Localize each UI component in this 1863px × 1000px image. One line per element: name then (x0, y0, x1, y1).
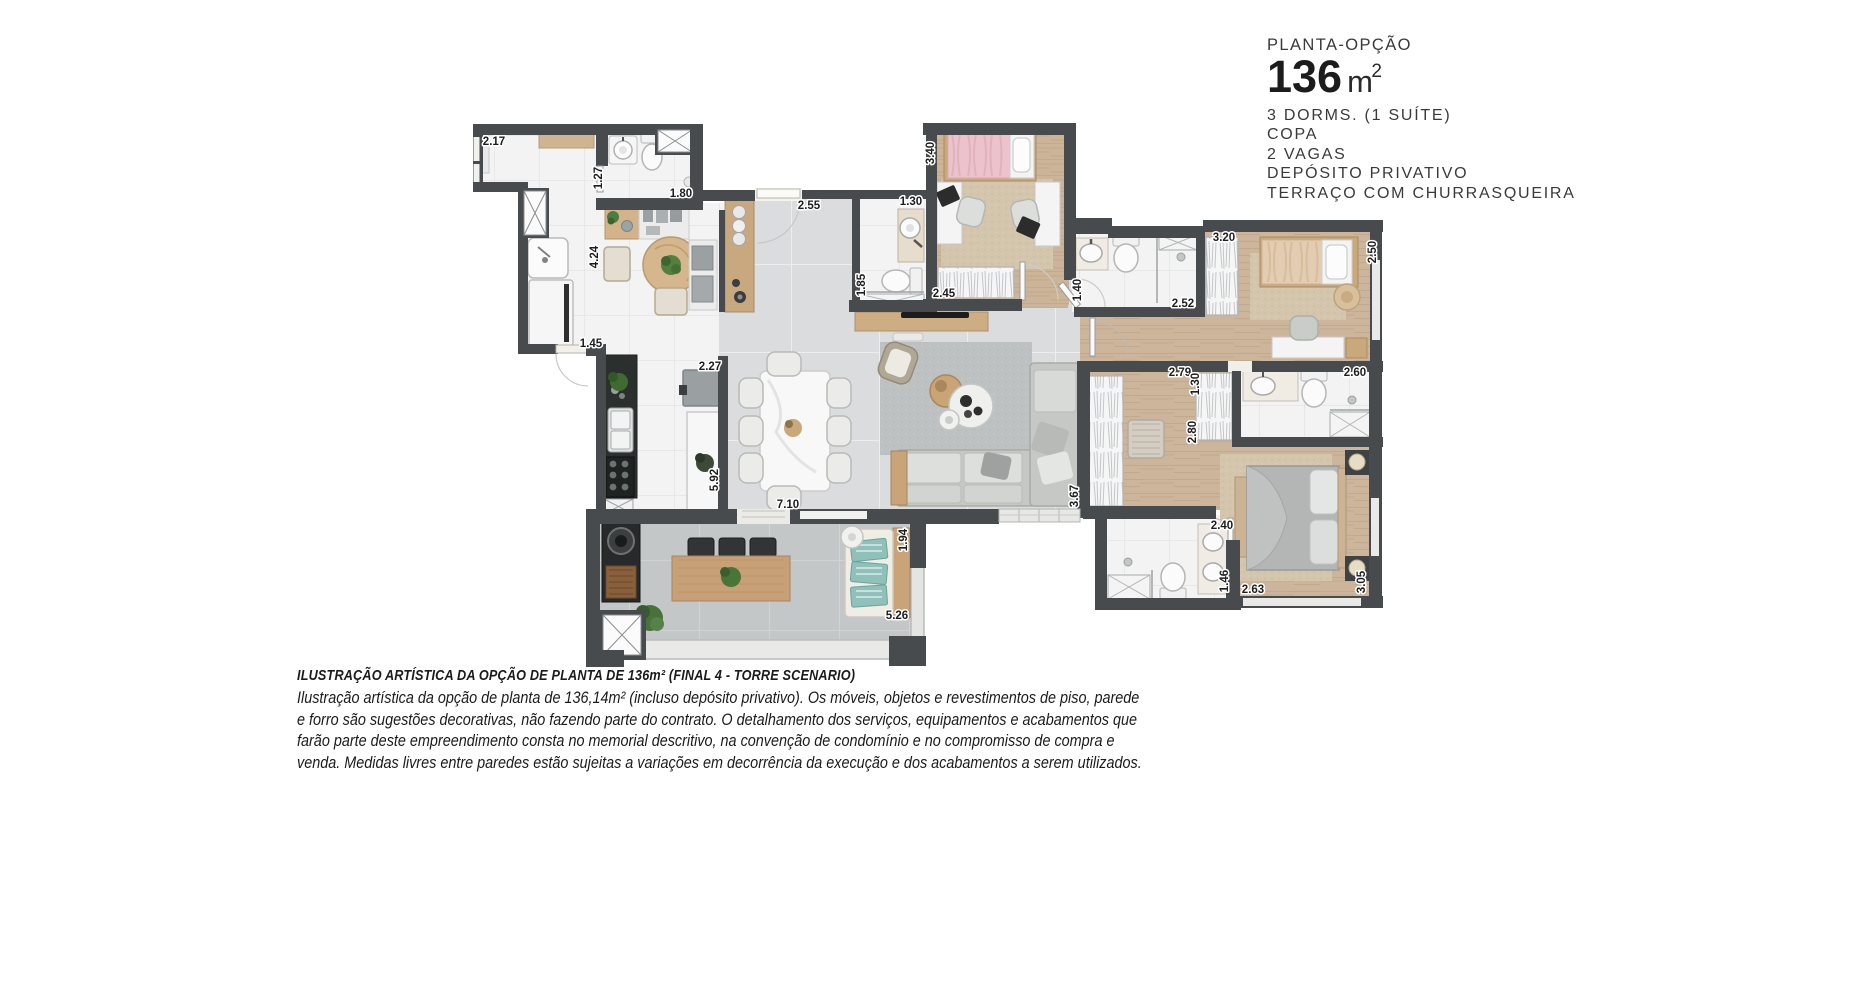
svg-text:1.45: 1.45 (580, 338, 603, 350)
svg-text:1.40: 1.40 (1072, 279, 1084, 301)
svg-text:1.80: 1.80 (670, 188, 692, 200)
svg-text:2.50: 2.50 (1367, 241, 1379, 263)
svg-text:3.05: 3.05 (1356, 570, 1368, 593)
svg-text:3.40: 3.40 (925, 142, 937, 164)
svg-text:3.67: 3.67 (1069, 485, 1081, 507)
svg-text:1.85: 1.85 (856, 273, 868, 296)
svg-text:2.27: 2.27 (699, 361, 721, 373)
svg-text:2.79: 2.79 (1169, 367, 1191, 379)
svg-text:2.60: 2.60 (1344, 367, 1366, 379)
svg-text:2.52: 2.52 (1172, 298, 1194, 310)
svg-text:1.27: 1.27 (593, 167, 605, 189)
svg-text:2.80: 2.80 (1187, 421, 1199, 443)
svg-text:2.40: 2.40 (1211, 520, 1233, 532)
svg-text:5.26: 5.26 (886, 610, 908, 622)
svg-text:2.45: 2.45 (933, 288, 956, 300)
svg-text:2.63: 2.63 (1242, 584, 1264, 596)
svg-text:7.10: 7.10 (777, 499, 799, 511)
svg-text:2.17: 2.17 (483, 136, 505, 148)
svg-text:1.30: 1.30 (1190, 373, 1202, 395)
svg-text:1.46: 1.46 (1219, 570, 1231, 592)
svg-text:2.55: 2.55 (798, 200, 821, 212)
svg-text:5.92: 5.92 (709, 469, 721, 491)
svg-text:1.30: 1.30 (900, 196, 922, 208)
svg-text:3.20: 3.20 (1213, 232, 1235, 244)
svg-text:1.94: 1.94 (898, 528, 910, 551)
svg-text:4.24: 4.24 (589, 245, 601, 268)
